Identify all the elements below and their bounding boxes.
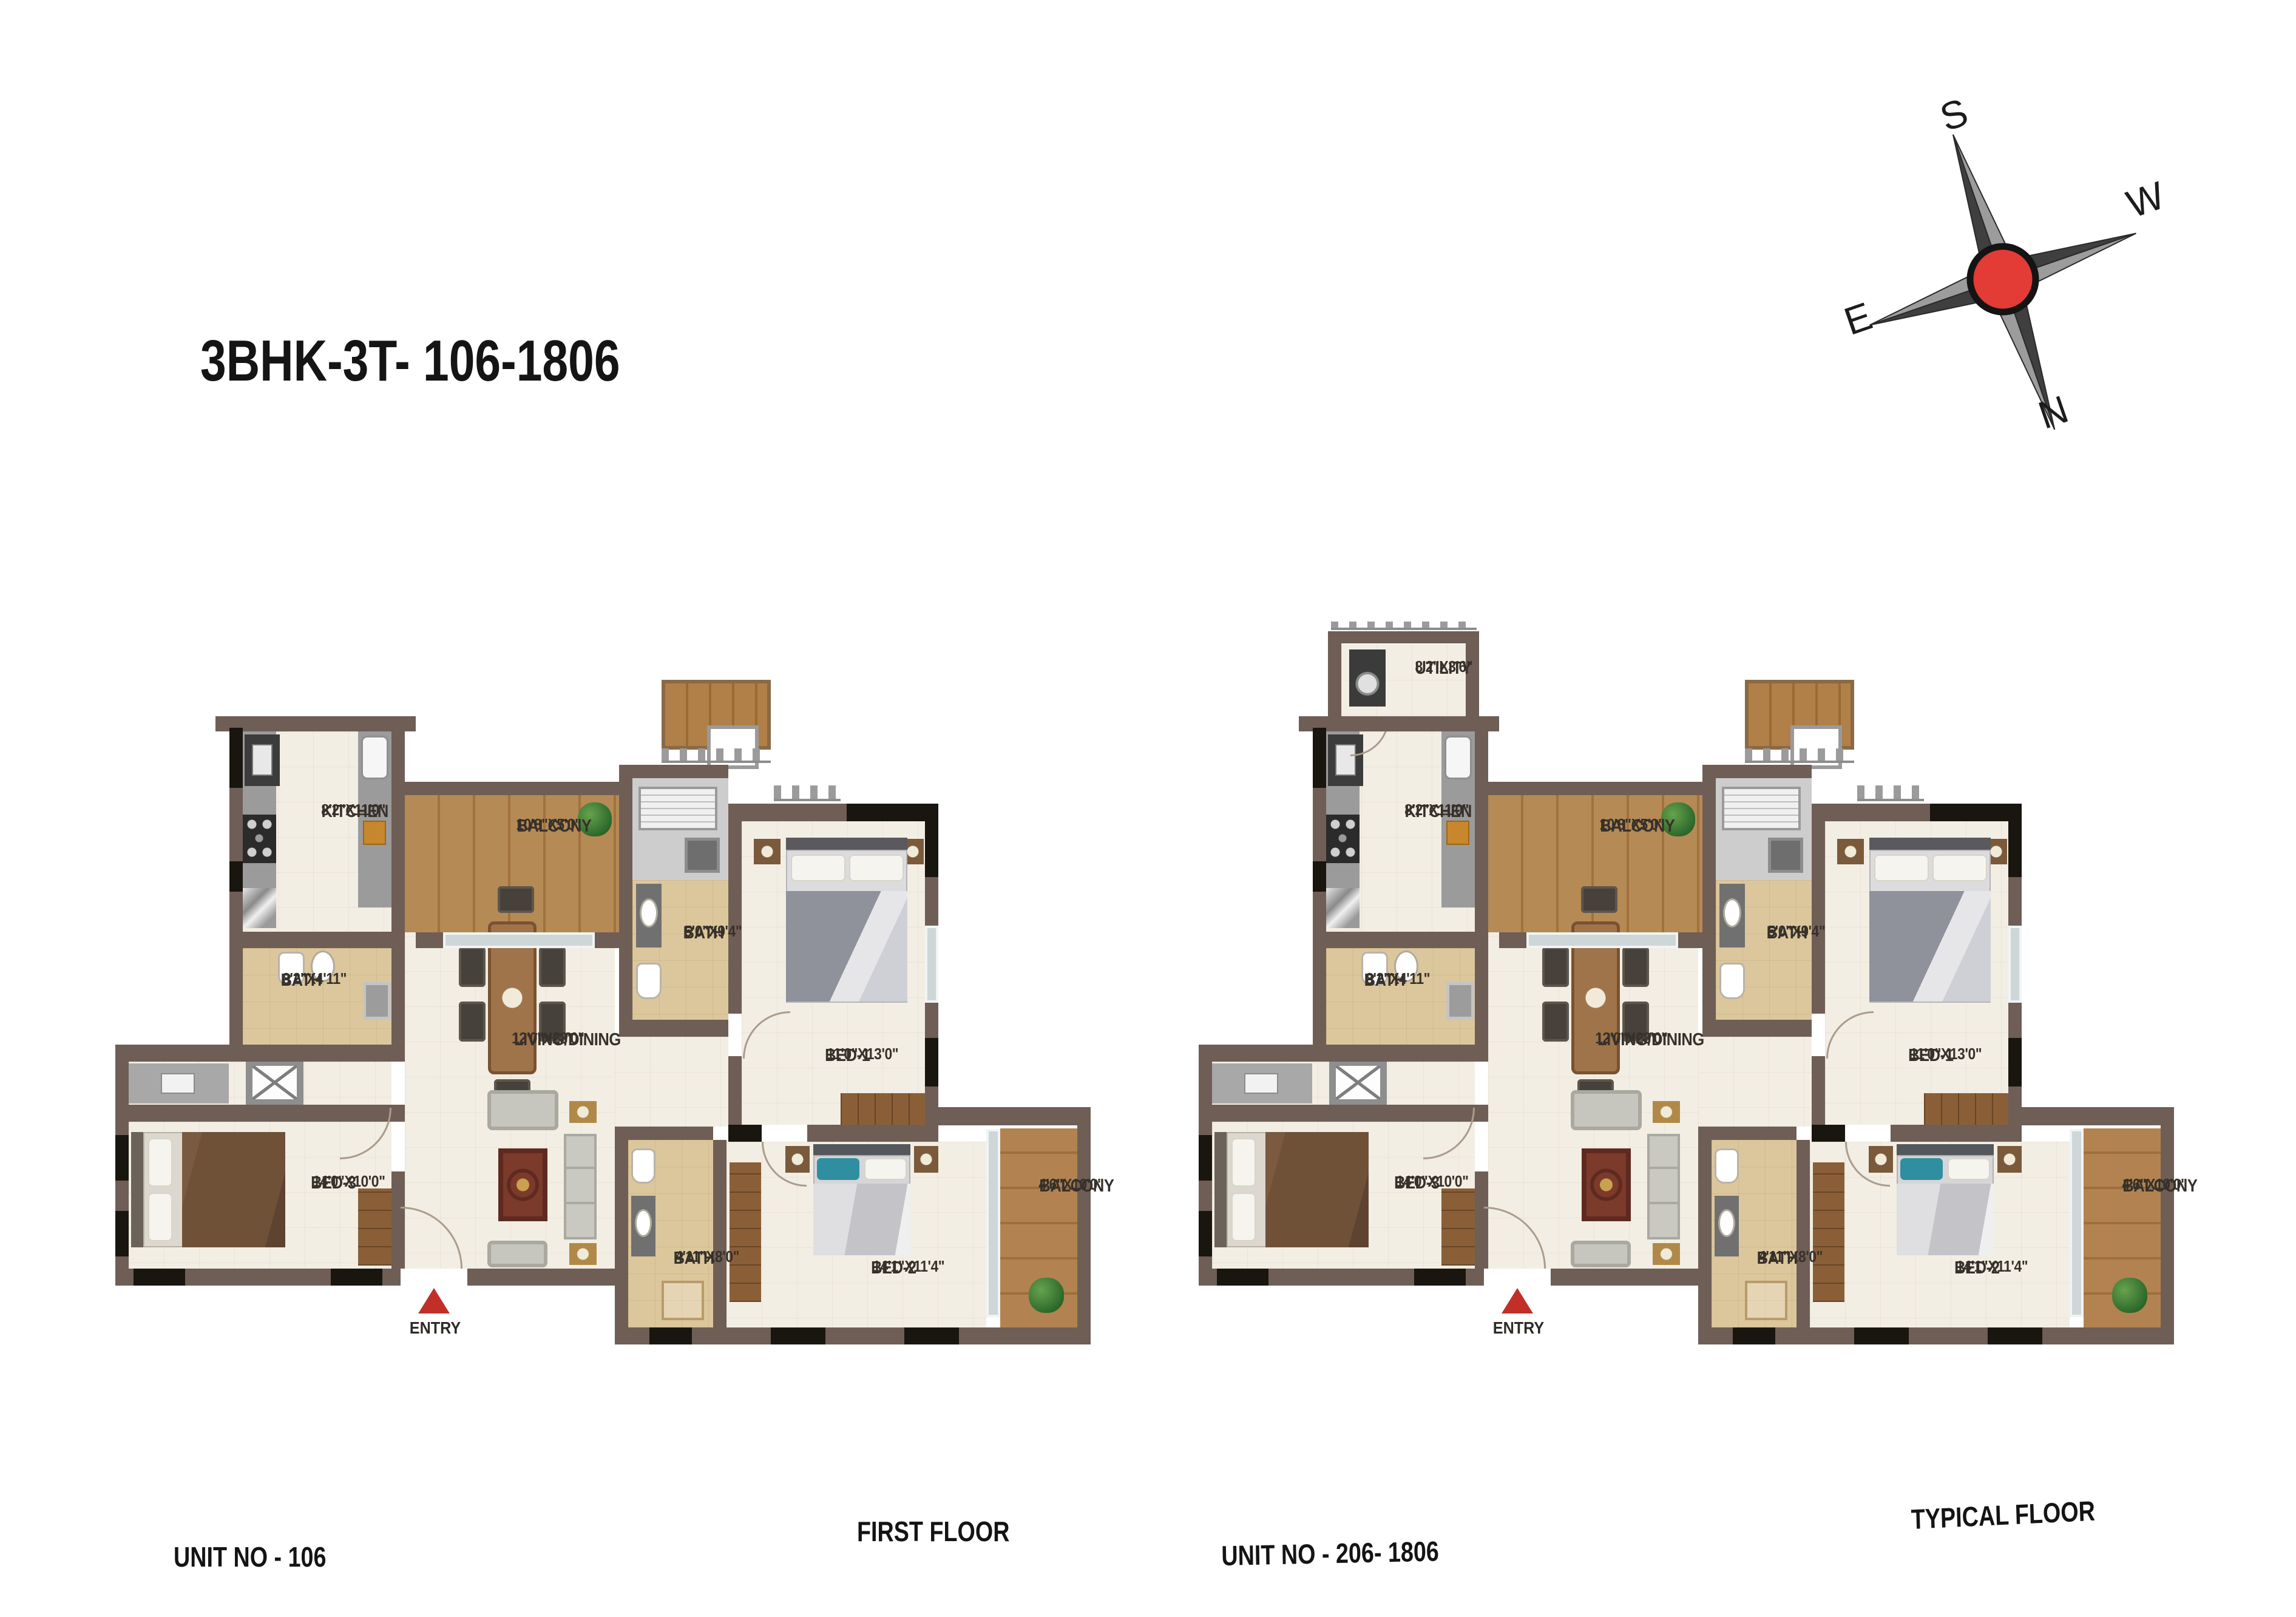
corridor-floor: [1698, 1037, 1812, 1127]
wall: [619, 1020, 728, 1037]
ac-panel-icon: [685, 838, 720, 873]
dining-chair-icon: [1542, 947, 1569, 987]
window-strip: [1199, 1135, 1212, 1181]
window-strip: [2008, 1038, 2022, 1086]
dining-chair-icon: [459, 1002, 486, 1042]
entry-arrow-icon: [418, 1288, 450, 1314]
kitchen-sink-icon: [361, 736, 388, 779]
wall: [615, 1127, 628, 1327]
steel-counter-icon: [243, 888, 276, 928]
bed1-blanket-icon: [1869, 891, 1991, 1002]
bath-top-toilet-icon: [636, 963, 662, 999]
wall: [1702, 765, 1716, 1037]
bed1-headboard-icon: [1869, 838, 1991, 850]
room-dims: 11'0"X13'0": [1910, 1044, 1982, 1063]
washer-box-icon: [1446, 982, 1474, 1020]
wall: [1702, 1020, 1812, 1037]
bed3-pillow2-icon: [1231, 1193, 1256, 1241]
wall: [215, 716, 416, 731]
wall: [1313, 932, 1488, 948]
room-dims: 10'8"X5'0": [516, 815, 581, 834]
nightstand-icon: [1997, 1146, 2022, 1173]
window-strip: [649, 1327, 692, 1344]
bed1-pillow-icon: [791, 855, 845, 881]
wall: [1698, 1127, 1797, 1140]
dining-chair-icon: [498, 886, 534, 913]
unit-caption-right: UNIT NO - 206- 1806: [1221, 1534, 1439, 1572]
glass-door: [1526, 932, 1678, 948]
bed2-wardrobe-icon: [730, 1162, 761, 1302]
side-table-icon: [1653, 1101, 1680, 1123]
room-dims: 12'0"X23'0": [512, 1028, 584, 1048]
room-dims: 8'2"X11'0": [321, 800, 385, 819]
wall: [1702, 765, 1812, 778]
glass-door: [443, 932, 595, 948]
wall: [619, 765, 632, 1037]
bed1-pillow2-icon: [1932, 855, 1987, 881]
nightstand-icon: [914, 1146, 938, 1173]
ledge-appliance-icon: [1244, 1073, 1278, 1094]
bed2-blanket-icon: [1897, 1184, 1994, 1255]
wall: [1698, 1127, 1712, 1327]
cutting-board-icon: [1446, 821, 1469, 845]
bed2-wardrobe-icon: [1813, 1162, 1844, 1302]
shaft-icon: [246, 1059, 303, 1106]
entry-label: ENTRY: [1493, 1318, 1544, 1338]
wall: [1475, 716, 1488, 948]
vent-strip-icon: [774, 785, 841, 801]
room-dims: 8'2"X11'0": [1404, 800, 1469, 819]
room-dims: 5'0"X9'4": [684, 921, 742, 941]
side-table-icon: [569, 1243, 597, 1265]
wall: [1466, 631, 1479, 730]
wall: [391, 716, 405, 948]
compass: S W E N: [1797, 67, 2209, 492]
window-strip: [1217, 1269, 1268, 1286]
dining-chair-icon: [459, 947, 486, 987]
window-strip: [134, 1269, 185, 1286]
wall: [807, 1125, 938, 1142]
nightstand-icon: [754, 839, 781, 864]
bath-mid-sink-icon: [635, 1209, 652, 1237]
bath-top-sink-icon: [1723, 898, 1741, 927]
plant-icon: [1029, 1278, 1064, 1313]
window-strip: [1313, 861, 1326, 892]
window-strip: [904, 1327, 959, 1344]
entry-label: ENTRY: [410, 1318, 461, 1338]
bed3-wardrobe-icon: [1441, 1188, 1475, 1266]
wall: [1328, 631, 1479, 643]
sofa-icon: [564, 1134, 597, 1239]
glass-door: [986, 1129, 1000, 1317]
kitchen-sink-icon: [1444, 736, 1472, 779]
wall: [1797, 1140, 1810, 1327]
bed2-pillow-icon: [864, 1158, 907, 1180]
bed3-wardrobe-icon: [358, 1188, 391, 1266]
dining-chair-icon: [1581, 886, 1617, 913]
window-strip: [115, 1135, 129, 1181]
bed2-headboard-icon: [1897, 1144, 1994, 1155]
armchair-icon: [487, 1241, 547, 1267]
bed3-blanket-icon: [182, 1132, 285, 1247]
wall: [405, 782, 619, 795]
room-dims: 4'6"X10'0": [2122, 1175, 2187, 1194]
rug-icon: [498, 1148, 547, 1221]
wall: [619, 765, 728, 778]
bed2-pillow-icon: [1948, 1158, 1990, 1180]
wall: [1891, 1125, 2022, 1142]
dining-chair-icon: [1622, 947, 1649, 987]
dresser-icon: [841, 1093, 927, 1125]
page-title: 3BHK-3T- 106-1806: [200, 328, 620, 395]
shaft-icon: [1329, 1059, 1387, 1106]
glass-door: [2070, 1129, 2084, 1317]
wall: [1551, 1269, 1712, 1286]
window-strip: [115, 1211, 129, 1256]
entry-arrow-icon: [1502, 1288, 1533, 1314]
window-strip: [1988, 1327, 2042, 1344]
room-dims: 8'2"X3'6": [1415, 657, 1472, 676]
bed1-pillow2-icon: [849, 855, 904, 881]
glass-window: [925, 926, 938, 1003]
wall: [615, 1127, 713, 1140]
room-dims: 4'11"X8'0": [1758, 1247, 1823, 1266]
wall: [1199, 1045, 1488, 1062]
ac-unit-icon: [638, 787, 717, 830]
window-strip: [925, 1038, 938, 1086]
wall: [2161, 1107, 2174, 1344]
steel-counter-icon: [1326, 888, 1360, 928]
sofa-icon: [1647, 1134, 1680, 1239]
wall: [2008, 1107, 2174, 1125]
dining-chair-icon: [539, 947, 566, 987]
bath-top-toilet-icon: [1719, 963, 1745, 999]
utility-vent-icon: [1331, 622, 1477, 630]
bath-top-sink-icon: [640, 898, 658, 927]
wall: [1488, 782, 1702, 795]
vent-strip-icon: [662, 748, 771, 763]
bed3-headboard-icon: [1214, 1132, 1227, 1247]
room-dims: 14'1"X11'4": [1956, 1256, 2028, 1276]
window-strip: [925, 819, 938, 877]
shower-icon: [662, 1281, 704, 1320]
floor-plan-unit-206-1806: UTILITY 8'2"X3'6" KITCHEN 8'2"X11'0" BAL…: [1199, 625, 2188, 1363]
wall: [1812, 1056, 1825, 1125]
shower-icon: [1745, 1281, 1787, 1320]
floor-caption-left: FIRST FLOOR: [857, 1515, 1009, 1548]
glass-window: [2008, 926, 2022, 1003]
bath-mid-toilet-icon: [1715, 1148, 1739, 1184]
cutting-board-icon: [363, 821, 386, 845]
bed3-blanket-icon: [1265, 1132, 1369, 1247]
bed2-pillow-teal-icon: [817, 1158, 859, 1180]
ac-panel-icon: [1768, 838, 1803, 873]
rug-icon: [1582, 1148, 1631, 1221]
wall: [416, 932, 443, 948]
window-strip: [847, 804, 938, 821]
armchair-icon: [1571, 1241, 1631, 1267]
wall: [115, 1045, 405, 1062]
floor-plan-page: 3BHK-3T- 106-1806 S W E N: [0, 0, 2296, 1617]
room-dims: 11'0"X13'0": [827, 1044, 898, 1063]
window-strip: [1199, 1211, 1212, 1256]
microwave-door-icon: [252, 744, 273, 776]
room-dims: 5'0"X9'4": [1767, 921, 1825, 941]
wall: [1299, 716, 1499, 731]
bed1-blanket-icon: [786, 891, 907, 1002]
ac-unit-icon: [1722, 787, 1801, 830]
floor-plan-unit-106: KITCHEN 8'2"X11'0" BALCONY 10'8"X5'0" BA…: [115, 625, 1105, 1363]
unit-caption-left: UNIT NO - 106: [174, 1541, 327, 1573]
washer-box-icon: [363, 982, 391, 1020]
wall: [728, 1056, 742, 1125]
side-table-icon: [1653, 1243, 1680, 1265]
window-strip: [331, 1269, 382, 1286]
window-strip: [771, 1327, 825, 1344]
window-strip: [1313, 728, 1326, 788]
bed3-pillow-icon: [1231, 1138, 1256, 1187]
bed2-headboard-icon: [813, 1144, 910, 1155]
wall: [1812, 804, 1825, 1014]
window-strip: [1930, 804, 2022, 821]
bath-mid-sink-icon: [1718, 1209, 1735, 1237]
room-dims: 14'1"X11'4": [873, 1256, 944, 1276]
compass-rose-icon: [1797, 67, 2209, 492]
room-dims: 4'11"X8'0": [675, 1247, 739, 1266]
washing-machine-icon: [1349, 649, 1386, 707]
wall: [467, 1269, 628, 1286]
window-strip: [1414, 1269, 1466, 1286]
room-dims: 14'0"X10'0": [313, 1171, 385, 1191]
vent-strip-icon: [1745, 748, 1854, 763]
wall: [728, 804, 742, 1014]
vent-strip-icon: [1857, 785, 1924, 801]
side-table-icon: [569, 1101, 597, 1123]
wall: [713, 1140, 726, 1327]
stove-icon: [243, 815, 276, 863]
room-dims: 8'2"X4'11": [282, 969, 347, 988]
window-strip: [1812, 1125, 1845, 1142]
window-strip: [229, 861, 243, 892]
room-dims: 12'0"X23'0": [1595, 1028, 1667, 1048]
bed3-pillow2-icon: [148, 1193, 172, 1241]
dresser-icon: [1924, 1093, 2011, 1125]
nightstand-icon: [1837, 839, 1864, 864]
bed2-blanket-icon: [813, 1184, 910, 1255]
bed1-pillow-icon: [1874, 855, 1929, 881]
loveseat-icon: [487, 1090, 558, 1130]
bed2-pillow-teal-icon: [1900, 1158, 1943, 1180]
wall: [1328, 631, 1341, 716]
dining-chair-icon: [1542, 1002, 1569, 1042]
corridor-floor: [615, 1037, 728, 1127]
wall: [595, 932, 619, 948]
bed3-pillow-icon: [148, 1138, 172, 1187]
wall: [925, 1107, 1091, 1125]
bed1-headboard-icon: [786, 838, 907, 850]
stove-icon: [1326, 815, 1360, 863]
room-dims: 14'0"X10'0": [1396, 1171, 1468, 1191]
window-strip: [728, 1125, 762, 1142]
ledge-appliance-icon: [161, 1073, 195, 1094]
wall: [1678, 932, 1702, 948]
window-strip: [1854, 1327, 1909, 1344]
bath-mid-toilet-icon: [631, 1148, 655, 1184]
room-dims: 8'2"X4'11": [1366, 969, 1430, 988]
wall: [229, 932, 405, 948]
room-dims: 10'8"X5'0": [1599, 815, 1664, 834]
plant-icon: [2112, 1278, 2147, 1313]
wall: [1499, 932, 1526, 948]
window-strip: [229, 728, 243, 788]
wall: [1077, 1107, 1091, 1344]
window-strip: [1733, 1327, 1775, 1344]
window-strip: [2008, 819, 2022, 877]
loveseat-icon: [1571, 1090, 1642, 1130]
bed3-headboard-icon: [131, 1132, 143, 1247]
floor-caption-right: TYPICAL FLOOR: [1911, 1494, 2096, 1536]
room-dims: 4'6"X10'0": [1038, 1175, 1103, 1194]
